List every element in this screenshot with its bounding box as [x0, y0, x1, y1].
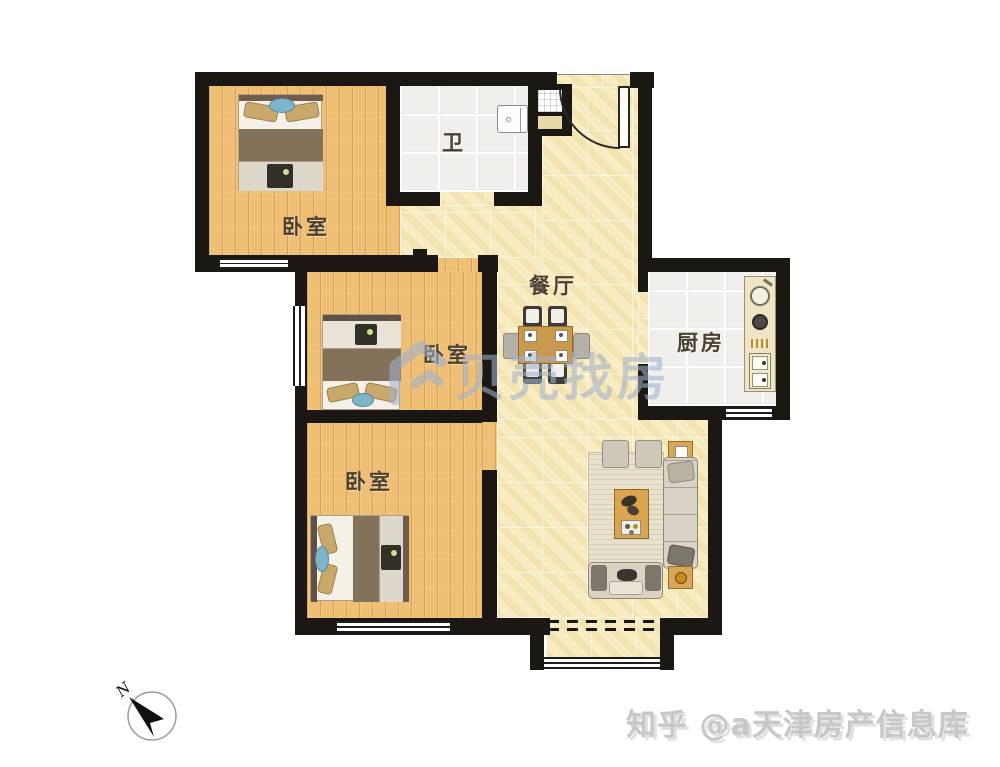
balcony-boundary-dash-2	[548, 628, 660, 631]
floor-balcony	[546, 618, 660, 658]
wall-bedroom-tl-right	[386, 86, 400, 200]
label-bathroom: 卫	[442, 127, 466, 157]
label-bedroom-mid: 卧室	[423, 339, 471, 369]
loveseat-throw	[617, 569, 637, 581]
kitchen-stove	[749, 353, 771, 389]
label-dining: 餐厅	[529, 270, 577, 300]
dining-plate-2	[555, 330, 568, 342]
wall-hall-right	[638, 72, 652, 262]
floor-kitchen-doorway	[638, 292, 648, 364]
dining-plate-3	[524, 350, 537, 362]
bed-bottom	[310, 515, 408, 601]
wall-kitchen-left-upper	[638, 272, 648, 292]
label-bedroom-tl: 卧室	[282, 211, 330, 241]
bed-bottom-blanket	[353, 516, 379, 602]
kitchen-knobs	[751, 339, 769, 348]
floor-bedroom-mid-doorway	[432, 257, 478, 272]
dining-chair-right	[573, 333, 590, 359]
loveseat-armrest-right	[645, 565, 661, 591]
wall-bathroom-bottom-right	[494, 192, 542, 206]
wall-bedroom-mid-bottom	[307, 410, 482, 423]
ottoman-2	[635, 440, 662, 468]
washing-machine-knob	[506, 117, 511, 122]
sofa-main-throw-top	[667, 460, 696, 483]
kitchen-stove-dot-1	[762, 361, 766, 365]
bed-bottom-cushion	[315, 546, 329, 572]
label-bedroom-bottom: 卧室	[345, 466, 393, 496]
wall-balcony-left-v	[530, 630, 544, 670]
wall-kitchen-top	[638, 258, 790, 272]
wall-bedroom-mid-right	[482, 272, 497, 422]
coffee-table	[614, 489, 649, 539]
bed-mid	[322, 314, 400, 410]
bed-bottom-edge	[403, 516, 409, 602]
wall-bedroom-bottom-right	[482, 470, 497, 635]
dining-table	[518, 326, 573, 364]
floor-bathroom-doorway	[440, 192, 494, 206]
bed-bottom-tv	[381, 545, 401, 570]
wall-nub-mid-top	[413, 249, 427, 256]
floor-bedroom-tl-doorway	[386, 200, 400, 256]
label-kitchen: 厨房	[677, 327, 725, 357]
window-bedroom-bottom	[337, 621, 450, 633]
side-table-bottom	[668, 566, 693, 589]
coffee-table-tray	[621, 520, 641, 535]
dining-plate-1	[524, 330, 537, 342]
window-bedroom-tl	[220, 258, 288, 269]
ottoman-1	[602, 440, 629, 468]
floorplan-canvas: 卧室 卫 餐厅 厨房 卧室 卧室 N 贝壳找房 知乎 @a天津房产信息库	[0, 0, 1000, 767]
kitchen-stove-dot-2	[762, 378, 766, 382]
loveseat-armrest-left	[591, 565, 607, 591]
bed-mid-cushion	[352, 393, 374, 407]
bed-mid-tv	[355, 324, 377, 345]
washing-machine-door-line	[520, 108, 521, 132]
bed-tl-blanket	[239, 129, 323, 161]
floor-bedroom-bottom-doorway	[482, 422, 497, 470]
sofa-main-throw-bottom	[666, 544, 695, 568]
wall-living-right	[708, 418, 722, 618]
balcony-boundary-dash-1	[548, 620, 660, 623]
window-balcony	[544, 657, 660, 669]
wall-bedroom-mid-top-corner	[478, 255, 498, 272]
credit-watermark: 知乎 @a天津房产信息库	[626, 700, 986, 744]
wall-bedroom-tl-left	[195, 86, 209, 257]
coffee-table-decor-2	[626, 504, 641, 517]
window-kitchen	[726, 407, 772, 419]
kitchen-faucet	[763, 278, 773, 286]
compass-icon: N	[112, 678, 176, 740]
bed-tl-tv	[267, 164, 293, 188]
bed-tl-cushion	[269, 98, 295, 113]
kitchen-burner	[752, 314, 768, 330]
window-bedroom-mid	[293, 306, 307, 386]
entrance-door-leaf	[618, 86, 630, 148]
wall-bathroom-bottom-left	[386, 192, 440, 206]
dining-plate-4	[555, 350, 568, 362]
side-table-bottom-bowl	[675, 572, 687, 584]
wall-top	[195, 72, 557, 86]
bed-mid-blanket	[323, 349, 401, 381]
compass-north-label: N	[112, 678, 135, 701]
kitchen-sink-round	[750, 286, 770, 306]
washing-machine	[497, 105, 528, 133]
wall-kitchen-right	[776, 258, 790, 420]
wall-kitchen-left-lower	[638, 364, 648, 406]
loveseat-cushion	[609, 581, 643, 595]
kitchen-counter	[744, 276, 776, 392]
sofa-main	[663, 457, 698, 569]
duct-shaft-grille	[538, 90, 562, 112]
loveseat	[588, 562, 663, 599]
wall-balcony-right-v	[660, 632, 674, 670]
duct-shaft-panel	[538, 116, 562, 129]
bed-tl	[238, 94, 322, 190]
